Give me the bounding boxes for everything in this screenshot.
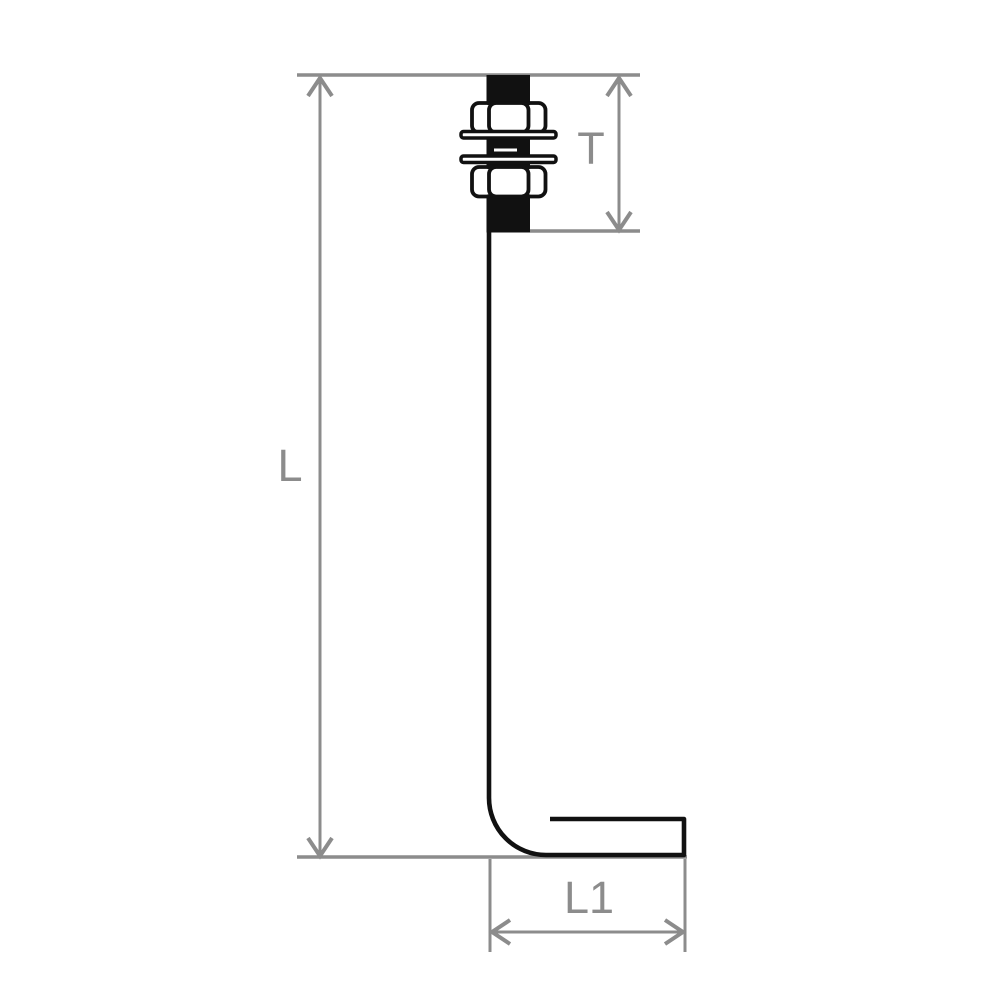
anchor-bolt-part [461,75,684,855]
dimension-T [607,78,631,230]
dimension-L1 [492,920,683,944]
anchor-bolt-diagram: L T L1 [0,0,1000,1000]
thread-section [487,75,531,233]
label-overall-length: L [277,440,302,491]
washer-bottom [461,156,556,163]
label-thread-length: T [577,123,605,174]
nut-facet-center [489,167,529,197]
label-bent-leg-length: L1 [564,872,614,923]
anchor-bolt-drawing-canvas: L T L1 [0,0,1000,1000]
hex-nut-top [472,103,546,133]
hex-nut-bottom [472,167,546,197]
dimension-labels: L T L1 [277,123,614,923]
washer-top [461,132,556,139]
nut-facet-center [489,103,529,133]
dimension-L [308,78,332,856]
